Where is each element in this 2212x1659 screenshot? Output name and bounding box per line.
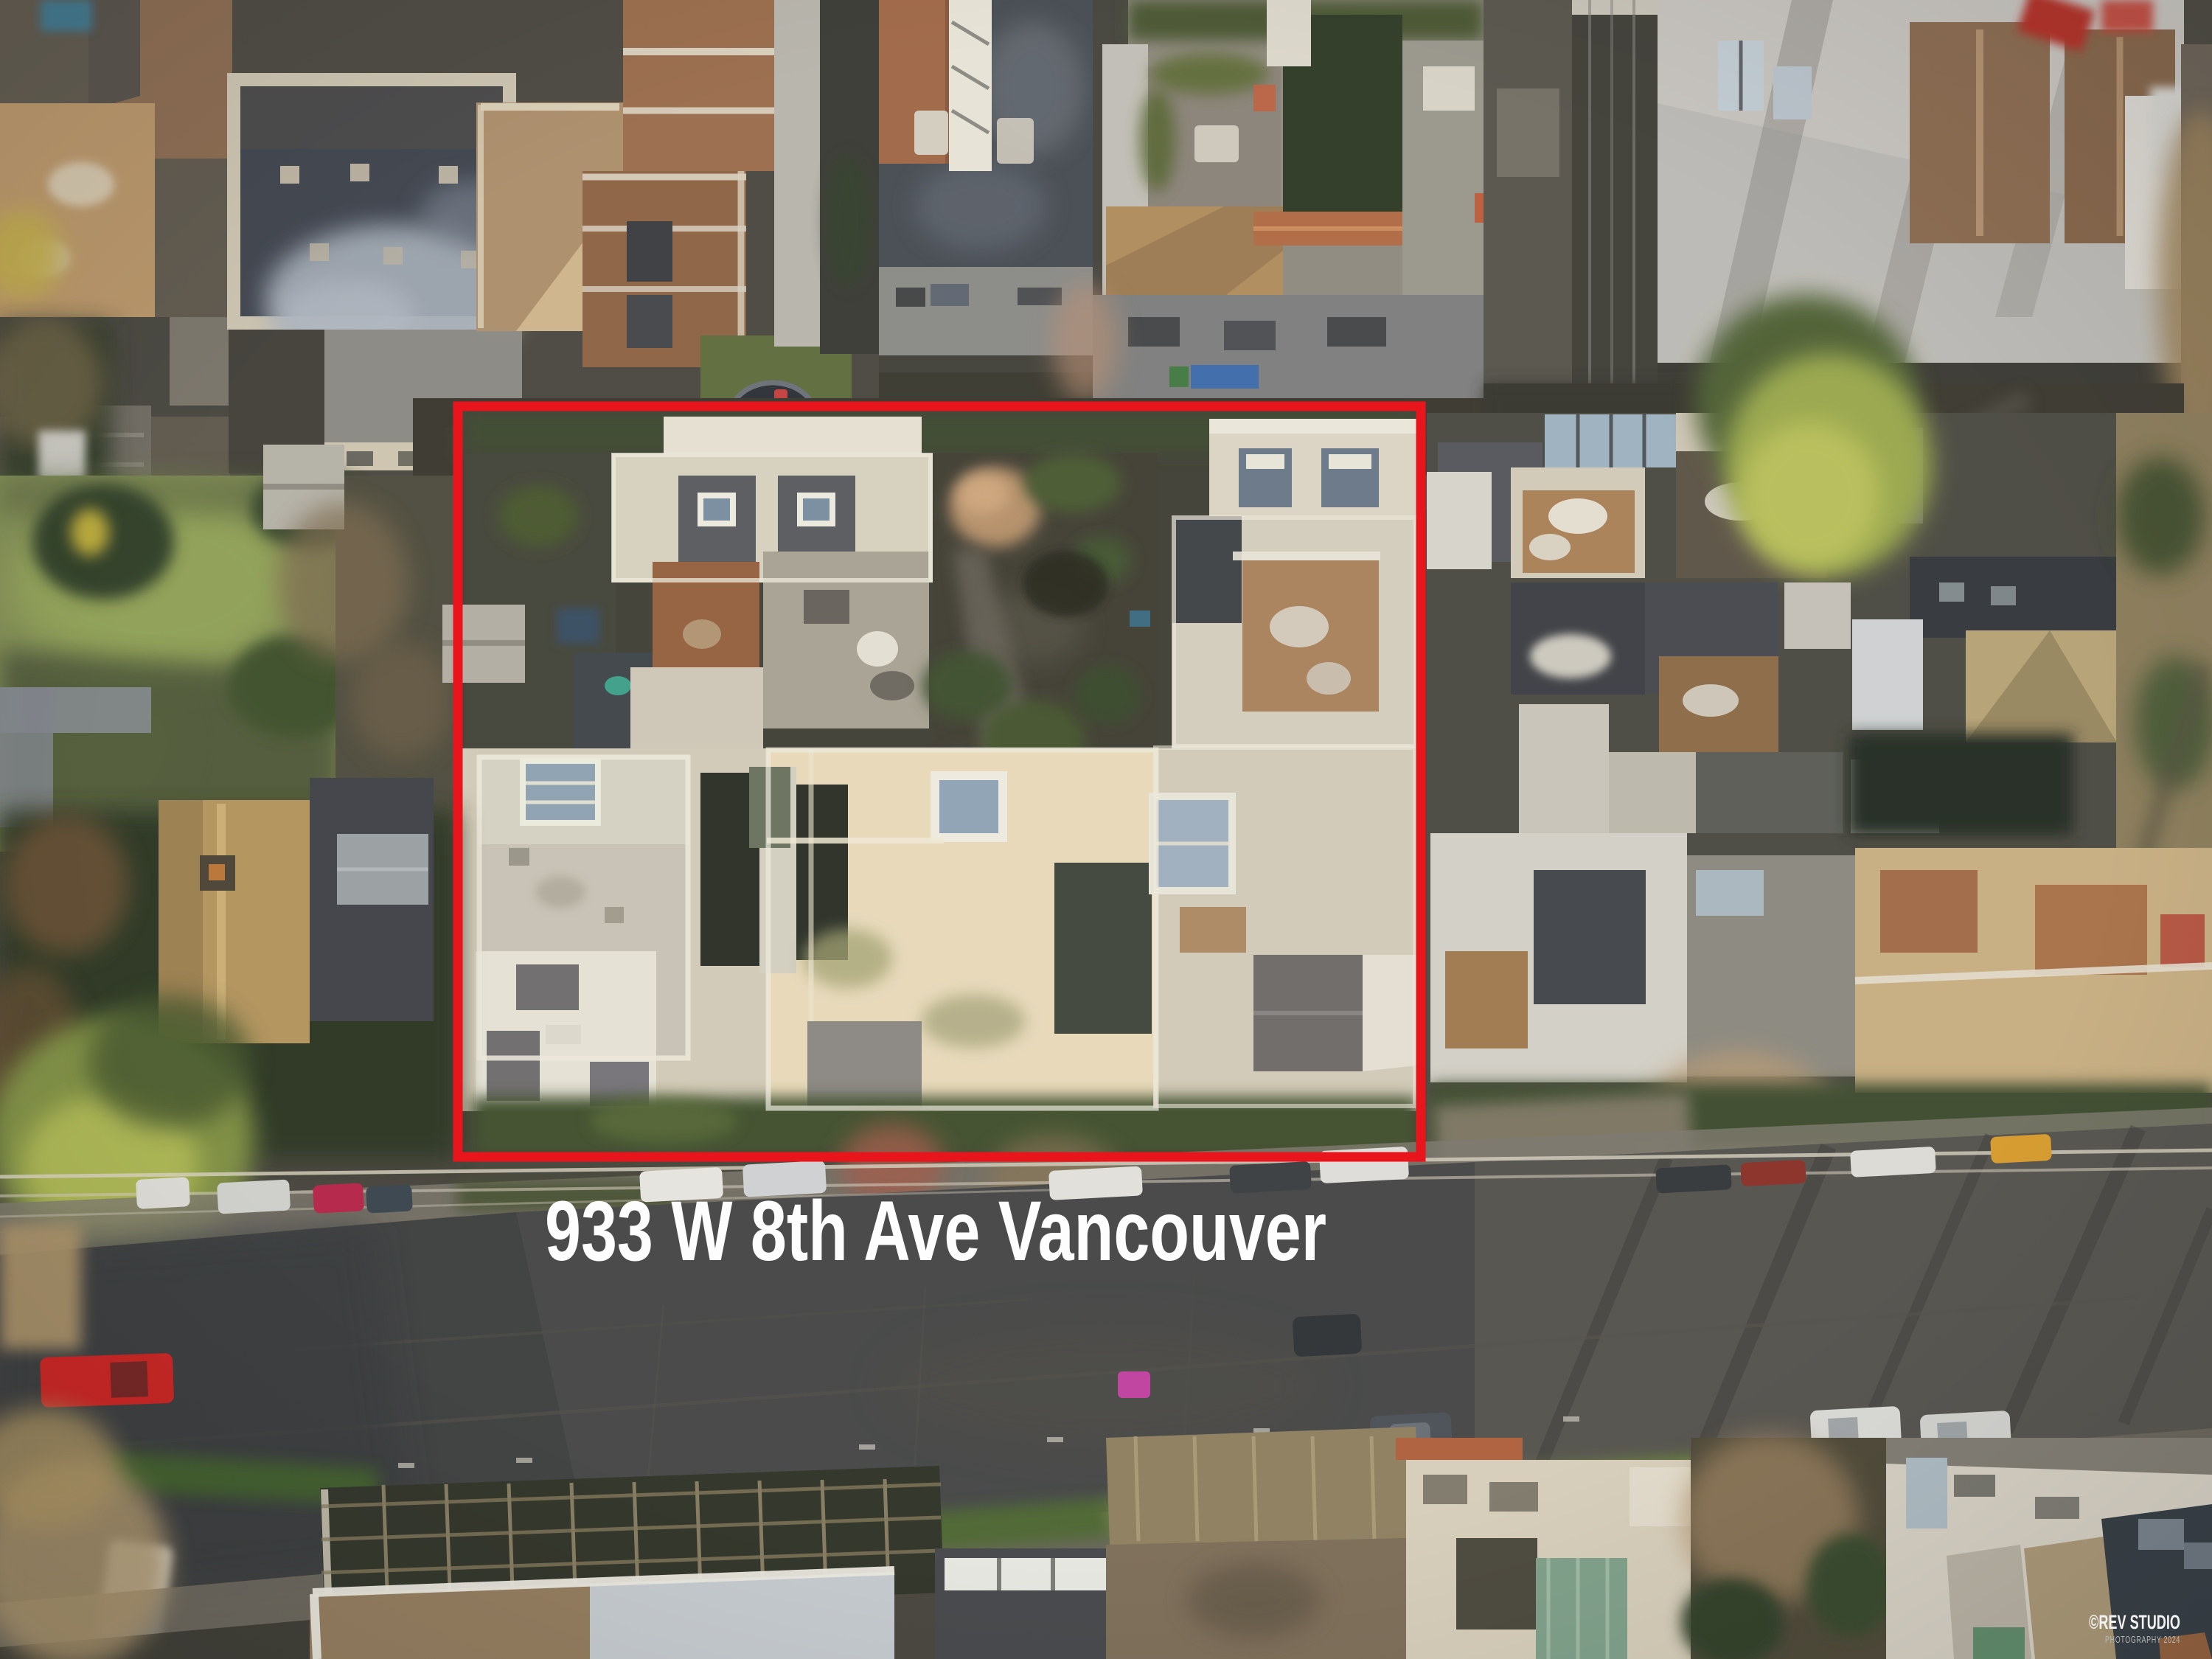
svg-text:©REV STUDIO: ©REV STUDIO (2089, 1611, 2180, 1633)
svg-text:PHOTOGRAPHY 2024: PHOTOGRAPHY 2024 (2105, 1634, 2180, 1645)
svg-text:933 W 8th Ave Vancouver: 933 W 8th Ave Vancouver (545, 1184, 1326, 1279)
